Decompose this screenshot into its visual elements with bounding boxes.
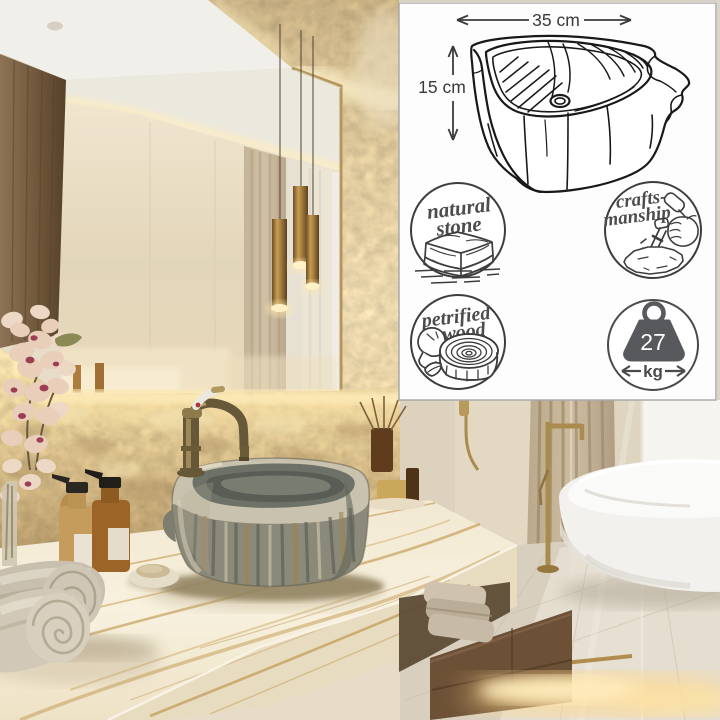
svg-text:kg: kg (643, 362, 663, 381)
svg-text:35 cm: 35 cm (532, 10, 580, 30)
svg-text:27: 27 (640, 329, 666, 355)
svg-text:15 cm: 15 cm (418, 77, 466, 97)
